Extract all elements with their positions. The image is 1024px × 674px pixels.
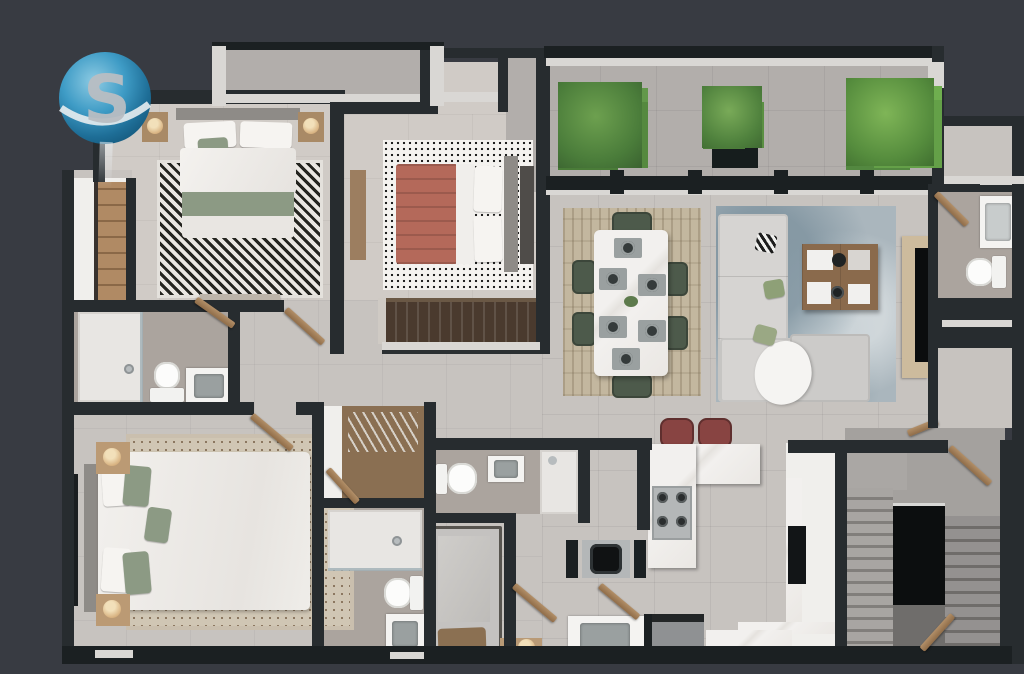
bedroom1-duvet	[180, 148, 296, 194]
logo: S	[55, 50, 155, 150]
wall-segment	[62, 402, 254, 415]
sliding-door-post	[774, 170, 788, 194]
window-band	[980, 178, 1012, 185]
terrace-parapet-band	[546, 58, 934, 66]
wall-segment	[324, 498, 424, 508]
stair-core-wall	[893, 503, 945, 605]
wall-segment	[424, 402, 436, 662]
closet-mirror	[94, 182, 98, 300]
toilet-tank	[150, 388, 184, 402]
bedroom1-headboard	[176, 108, 300, 120]
decor-bowl	[832, 253, 846, 267]
wall-segment	[62, 300, 284, 312]
stair-flight-down	[847, 488, 893, 662]
green-accent-pillow	[763, 278, 786, 299]
closet-shelves	[98, 182, 126, 300]
bedroom1-green-blanket	[182, 192, 294, 218]
stair-flight-up	[945, 516, 1000, 662]
small-balcony-parapet	[212, 42, 444, 50]
wall-segment	[930, 298, 1024, 308]
toilet	[447, 463, 477, 494]
wall-segment	[578, 441, 590, 523]
wall-segment	[536, 48, 550, 354]
dining-chair	[572, 260, 596, 294]
tv	[915, 248, 929, 362]
floor-plan-render: S	[0, 0, 1024, 674]
plate	[645, 324, 659, 338]
table-lamp	[103, 448, 121, 466]
table-lamp	[103, 600, 121, 618]
toilet	[384, 578, 412, 608]
terrace-plant	[846, 78, 934, 166]
sliding-door-post	[688, 170, 702, 194]
wall-segment	[1000, 440, 1012, 662]
sliding-door-post	[860, 170, 874, 194]
bedroom2-wardrobe	[384, 298, 538, 348]
sink-basin	[494, 460, 518, 478]
plate	[645, 278, 659, 292]
wall-segment	[637, 450, 650, 530]
terrace-parapet	[544, 46, 936, 58]
plate	[619, 352, 633, 366]
bedroom2-dresser	[350, 170, 366, 260]
toilet-tank	[436, 464, 447, 494]
dining-chair	[572, 312, 596, 346]
logo-letter: S	[83, 61, 131, 138]
south-wall	[62, 646, 1012, 664]
terrace-plant	[702, 86, 762, 148]
shower	[540, 450, 578, 514]
wardrobe-trim	[378, 298, 386, 344]
shower-head	[548, 456, 557, 465]
balcony-pillar	[430, 46, 444, 106]
shower-head	[392, 536, 402, 546]
sink-basin	[194, 374, 224, 398]
wall-segment	[62, 170, 74, 662]
bedroom2-side-bench	[520, 166, 534, 264]
wall-segment	[930, 184, 1012, 192]
zebra-pillow	[754, 232, 777, 254]
cooktop-burner	[657, 516, 668, 527]
wall-segment	[126, 178, 136, 306]
cooktop-burner	[676, 492, 687, 503]
bedroom2-sheet	[456, 164, 474, 264]
closet-hanging-rail	[348, 412, 418, 452]
bedroom2-blanket	[396, 164, 458, 264]
wall-segment	[426, 513, 506, 523]
decor-tray	[807, 282, 831, 304]
wall-segment	[788, 440, 948, 453]
plate	[606, 272, 620, 286]
toilet-tank	[992, 256, 1006, 288]
centerpiece	[624, 296, 638, 307]
dining-chair	[612, 374, 652, 398]
bed-pillow	[240, 121, 293, 149]
wall-slot	[942, 320, 1012, 327]
toilet	[966, 258, 994, 286]
cooktop-burner	[676, 516, 687, 527]
sliding-door-post	[610, 170, 624, 194]
green-accent-pillow	[122, 551, 152, 595]
table-lamp	[303, 118, 319, 134]
balcony-pillar	[212, 46, 226, 106]
threshold	[95, 650, 133, 658]
shower-head	[124, 364, 134, 374]
sliding-door-sill	[546, 190, 932, 195]
green-accent-pillow	[144, 506, 172, 543]
right-corridor-floor	[930, 348, 1024, 428]
decor-tray	[848, 250, 870, 270]
decor-tray	[807, 250, 833, 270]
wall-post	[566, 540, 578, 578]
washer-door	[590, 544, 622, 574]
wall-segment	[498, 48, 508, 112]
fridge-nook	[788, 526, 806, 584]
bed-pillow	[473, 216, 503, 263]
cooktop-burner	[657, 492, 668, 503]
bedroom2-headboard	[504, 156, 518, 272]
wall-band	[930, 308, 1024, 348]
threshold	[390, 652, 424, 659]
wall-segment	[330, 102, 344, 354]
terrace-plant	[558, 82, 642, 168]
toilet-tank	[410, 576, 423, 610]
bed-pillow	[473, 166, 503, 213]
sink-basin	[985, 203, 1011, 241]
sink-basin	[392, 621, 418, 647]
plate	[621, 241, 635, 255]
shower	[78, 312, 142, 402]
wall-line	[382, 350, 540, 354]
wall-segment	[312, 402, 324, 662]
wall-post	[634, 540, 646, 578]
bedroom1-foot-sheet	[182, 216, 294, 238]
shower	[328, 510, 422, 570]
shower-glass	[140, 312, 143, 402]
shower-glass	[328, 568, 422, 571]
single-bed-sheet	[438, 536, 490, 622]
wall-segment	[424, 438, 652, 450]
toilet	[154, 362, 180, 389]
decor-tray	[848, 284, 870, 304]
decor-bowl	[831, 286, 844, 299]
plate	[606, 320, 620, 334]
wall-segment	[835, 440, 847, 662]
wall-segment	[1012, 116, 1024, 664]
logo-streak	[98, 142, 113, 188]
